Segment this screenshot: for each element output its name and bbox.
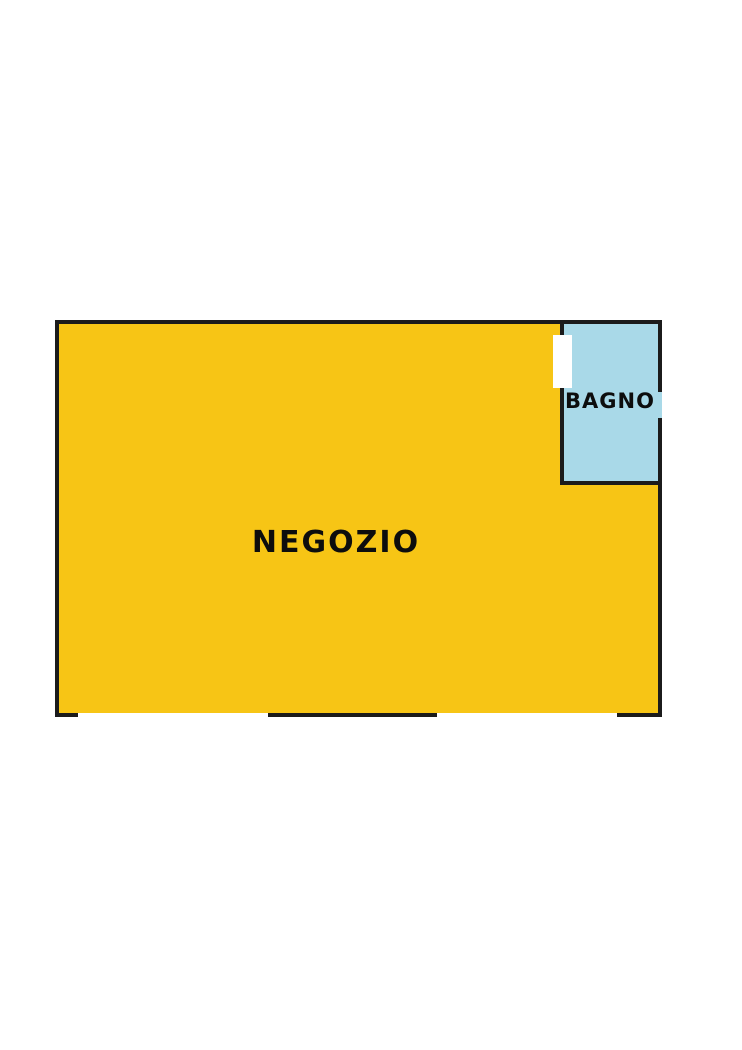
page-background: { "colors": { "background": "#ffffff", "… bbox=[0, 0, 742, 1050]
storefront-opening-right bbox=[437, 713, 617, 717]
storefront-opening-left bbox=[78, 713, 268, 717]
bagno-room-label: BAGNO bbox=[560, 390, 660, 412]
bagno-door-opening bbox=[553, 335, 572, 388]
negozio-room-label: NEGOZIO bbox=[206, 528, 466, 558]
